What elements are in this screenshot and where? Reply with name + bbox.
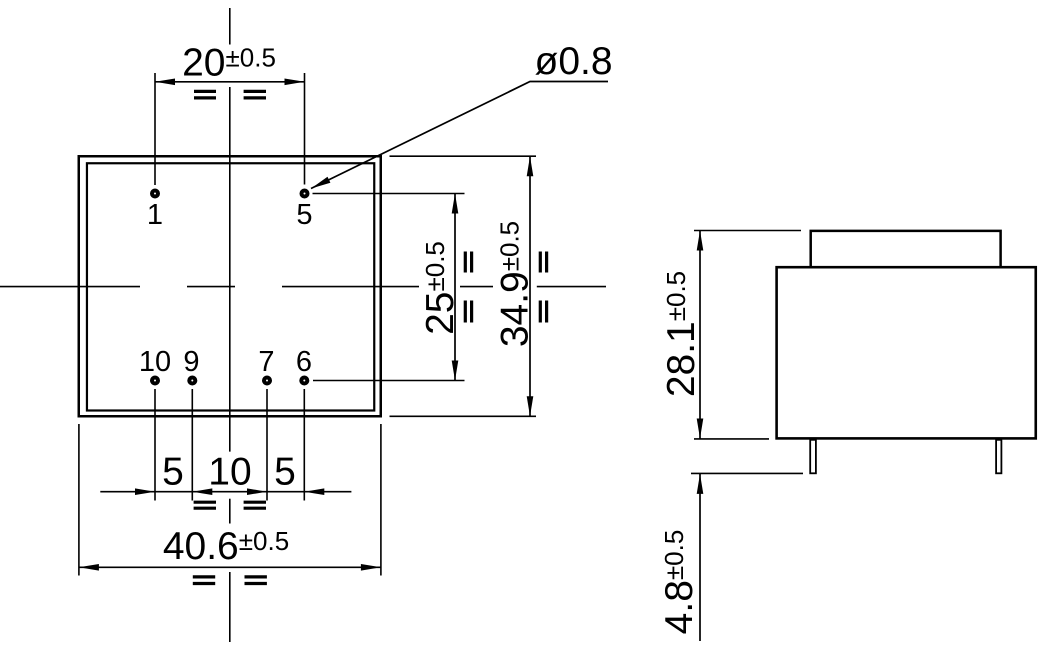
svg-text:10: 10 bbox=[208, 451, 251, 494]
svg-text:5: 5 bbox=[162, 451, 184, 494]
svg-text:6: 6 bbox=[296, 346, 312, 378]
svg-text:1: 1 bbox=[147, 199, 163, 231]
svg-text:5: 5 bbox=[296, 199, 312, 231]
svg-text:5: 5 bbox=[274, 451, 296, 494]
svg-text:9: 9 bbox=[183, 346, 199, 378]
svg-text:7: 7 bbox=[258, 346, 274, 378]
svg-text:10: 10 bbox=[139, 346, 171, 378]
svg-text:ø0.8: ø0.8 bbox=[535, 40, 613, 83]
